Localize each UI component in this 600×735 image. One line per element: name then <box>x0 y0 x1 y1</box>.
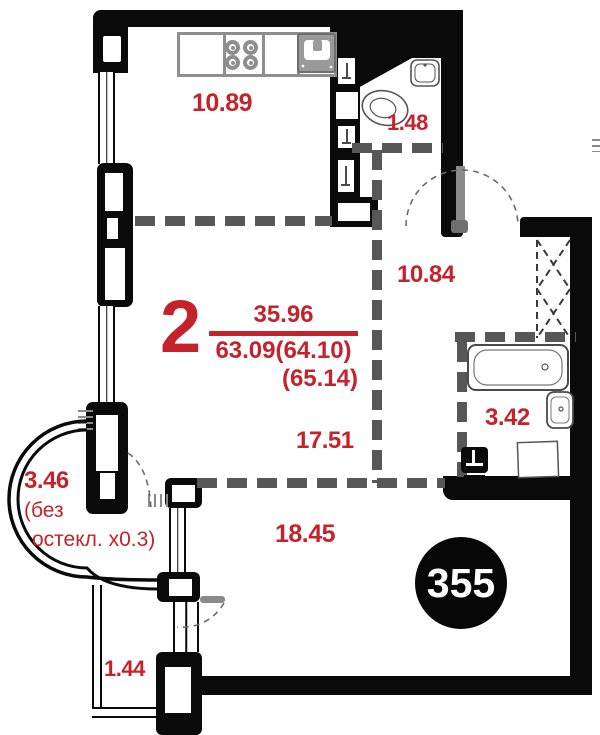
vent-mark-icon <box>342 63 351 79</box>
partition-wc <box>352 143 443 153</box>
balcony-small-area-label: 1.44 <box>104 657 145 681</box>
wall-top <box>93 10 463 27</box>
room-upper-area-label: 17.51 <box>296 428 354 454</box>
towel-rail-detail <box>472 450 475 463</box>
towel-rail-base <box>464 475 485 479</box>
window-icon <box>98 306 115 403</box>
bathroom-area-label: 3.42 <box>485 405 530 431</box>
stove-burners-icon <box>243 55 258 70</box>
shaft-slot <box>336 92 358 119</box>
entry-door-leaf <box>456 166 465 224</box>
kitchen-area-label: 10.89 <box>192 90 252 118</box>
bathtub-icon <box>468 345 568 390</box>
balcony-note-line1: (без <box>24 499 64 522</box>
pier-inset <box>107 218 118 239</box>
partition-living <box>197 478 445 488</box>
pier-inset <box>96 415 118 471</box>
wall-right-lower <box>570 477 592 695</box>
area-summary: 35.96 63.09(64.10) (65.14) <box>209 301 358 393</box>
vent-mark-icon <box>341 166 350 186</box>
wc-area-label: 1.48 <box>387 111 428 135</box>
balcony-small-wall <box>92 707 156 718</box>
wall-stub <box>592 139 600 152</box>
washing-machine-icon <box>517 441 558 477</box>
room-count: 2 <box>160 290 201 364</box>
living-area-value: 35.96 <box>209 301 358 329</box>
pier-inset <box>100 473 115 499</box>
apartment-number-badge: 355 <box>415 537 507 629</box>
balcony-note-line2: остекл. x0.3) <box>32 528 155 551</box>
stove-burners-icon <box>243 40 258 55</box>
pier-inset <box>165 667 191 713</box>
door-handle <box>200 596 225 603</box>
wall-bottom <box>196 676 592 695</box>
hallway-area-label: 10.84 <box>397 262 455 288</box>
stove-burners-icon <box>225 40 240 55</box>
counter-divider <box>223 35 226 74</box>
window-icon <box>98 72 115 164</box>
pier-inset <box>103 36 121 62</box>
radiator-icon <box>78 410 93 432</box>
partition-kitchen <box>135 216 332 226</box>
pier-inset <box>169 579 192 596</box>
duct-wedge-wall <box>358 27 441 88</box>
fraction-bar <box>209 331 358 336</box>
washbasin-icon <box>411 60 439 86</box>
pier-inset <box>338 203 370 221</box>
total-area-alt-value: (65.14) <box>209 365 358 393</box>
balcony-small-wall <box>92 585 102 715</box>
balcony-round-area-label: 3.46 <box>24 468 69 494</box>
stove-burners-icon <box>225 55 240 70</box>
partition-bath-top <box>455 332 576 342</box>
partition-main-vertical <box>372 150 382 483</box>
counter-divider <box>297 35 300 74</box>
wardrobe-cross-icon <box>537 240 570 338</box>
vent-mark-icon <box>342 129 351 144</box>
pier-inset <box>105 173 123 211</box>
window-icon <box>173 602 199 652</box>
kitchen-counter <box>177 32 337 77</box>
wall-right-upper <box>570 217 592 477</box>
counter-divider <box>262 35 265 74</box>
radiator-icon <box>148 494 168 507</box>
entry-door-hinge <box>451 220 468 233</box>
window-icon <box>169 508 186 572</box>
floor-plan: 10.89 1.48 10.84 3.42 17.51 18.45 3.46 (… <box>0 0 600 735</box>
total-area-value: 63.09(64.10) <box>209 337 358 365</box>
towel-rail-detail <box>466 463 483 466</box>
room-lower-area-label: 18.45 <box>275 521 335 549</box>
pier-inset <box>105 248 125 300</box>
pier-inset <box>172 485 195 502</box>
